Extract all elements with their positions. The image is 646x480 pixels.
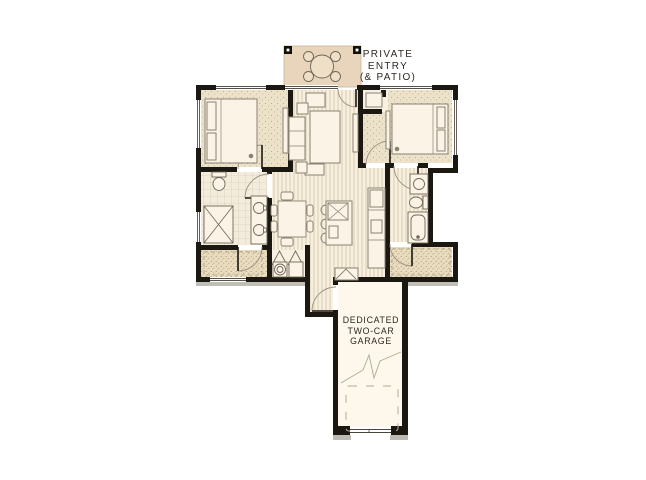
dining-chair bbox=[281, 192, 293, 200]
window-bedroom2-top bbox=[380, 85, 432, 90]
bed-1-knob bbox=[249, 154, 253, 158]
range bbox=[371, 220, 382, 233]
armchair bbox=[306, 93, 325, 107]
private-entry-label: PRIVATE ENTRY (& PATIO) bbox=[348, 49, 428, 84]
closet-shelf bbox=[366, 93, 382, 107]
faucet bbox=[264, 206, 267, 210]
coffee-table bbox=[310, 111, 340, 163]
side-table bbox=[296, 162, 307, 173]
window-entry-sill bbox=[285, 85, 338, 90]
window-bathroom1-left bbox=[196, 212, 201, 242]
dining-chair bbox=[307, 221, 313, 232]
dining-chair bbox=[281, 238, 293, 246]
dining-chair bbox=[307, 205, 313, 216]
tv-console bbox=[353, 114, 358, 152]
bed-2-pillow bbox=[437, 130, 445, 151]
faucet bbox=[264, 228, 267, 232]
refrigerator bbox=[370, 190, 383, 207]
bathtub-drain bbox=[417, 236, 420, 239]
washer-drum-inner bbox=[277, 267, 283, 273]
toilet-2-tank bbox=[423, 196, 428, 209]
window-bedroom1-left bbox=[196, 100, 201, 148]
ottoman bbox=[305, 164, 324, 175]
dryer bbox=[289, 262, 303, 277]
walk-in-closet-1-floor bbox=[201, 250, 267, 277]
garage-floor bbox=[338, 282, 402, 431]
window-closet1-bottom bbox=[210, 277, 246, 282]
bed-1-pillow bbox=[207, 133, 216, 160]
garage-label: DEDICATED TWO-CAR GARAGE bbox=[337, 315, 405, 347]
window-bedroom2-right bbox=[453, 100, 458, 155]
bed-1-pillow bbox=[207, 102, 216, 130]
toilet-2 bbox=[410, 197, 423, 208]
toilet-1 bbox=[213, 178, 225, 191]
dresser-1 bbox=[283, 108, 288, 153]
sink bbox=[254, 203, 265, 214]
toilet-1-tank bbox=[212, 172, 226, 177]
dining-chair bbox=[271, 205, 277, 216]
window-bedroom1-top bbox=[216, 85, 266, 90]
floor-plan-page: PRIVATE ENTRY (& PATIO) DEDICATED TWO-CA… bbox=[0, 0, 646, 480]
sink bbox=[254, 225, 265, 236]
patio-table bbox=[311, 55, 334, 78]
side-table bbox=[297, 103, 308, 114]
sofa bbox=[289, 117, 305, 160]
garage-door bbox=[350, 427, 391, 435]
bed-2-knob bbox=[395, 147, 399, 151]
sink-2 bbox=[414, 179, 425, 190]
patio-post-left-dot bbox=[287, 49, 290, 52]
dining-chair bbox=[271, 221, 277, 232]
bed-2-pillow bbox=[437, 107, 445, 128]
bed-2-bench bbox=[386, 111, 390, 149]
garage-hall-floor bbox=[310, 277, 333, 312]
island-cabinet bbox=[329, 226, 338, 238]
dining-table bbox=[278, 201, 306, 237]
floor-plan-svg bbox=[0, 0, 646, 480]
